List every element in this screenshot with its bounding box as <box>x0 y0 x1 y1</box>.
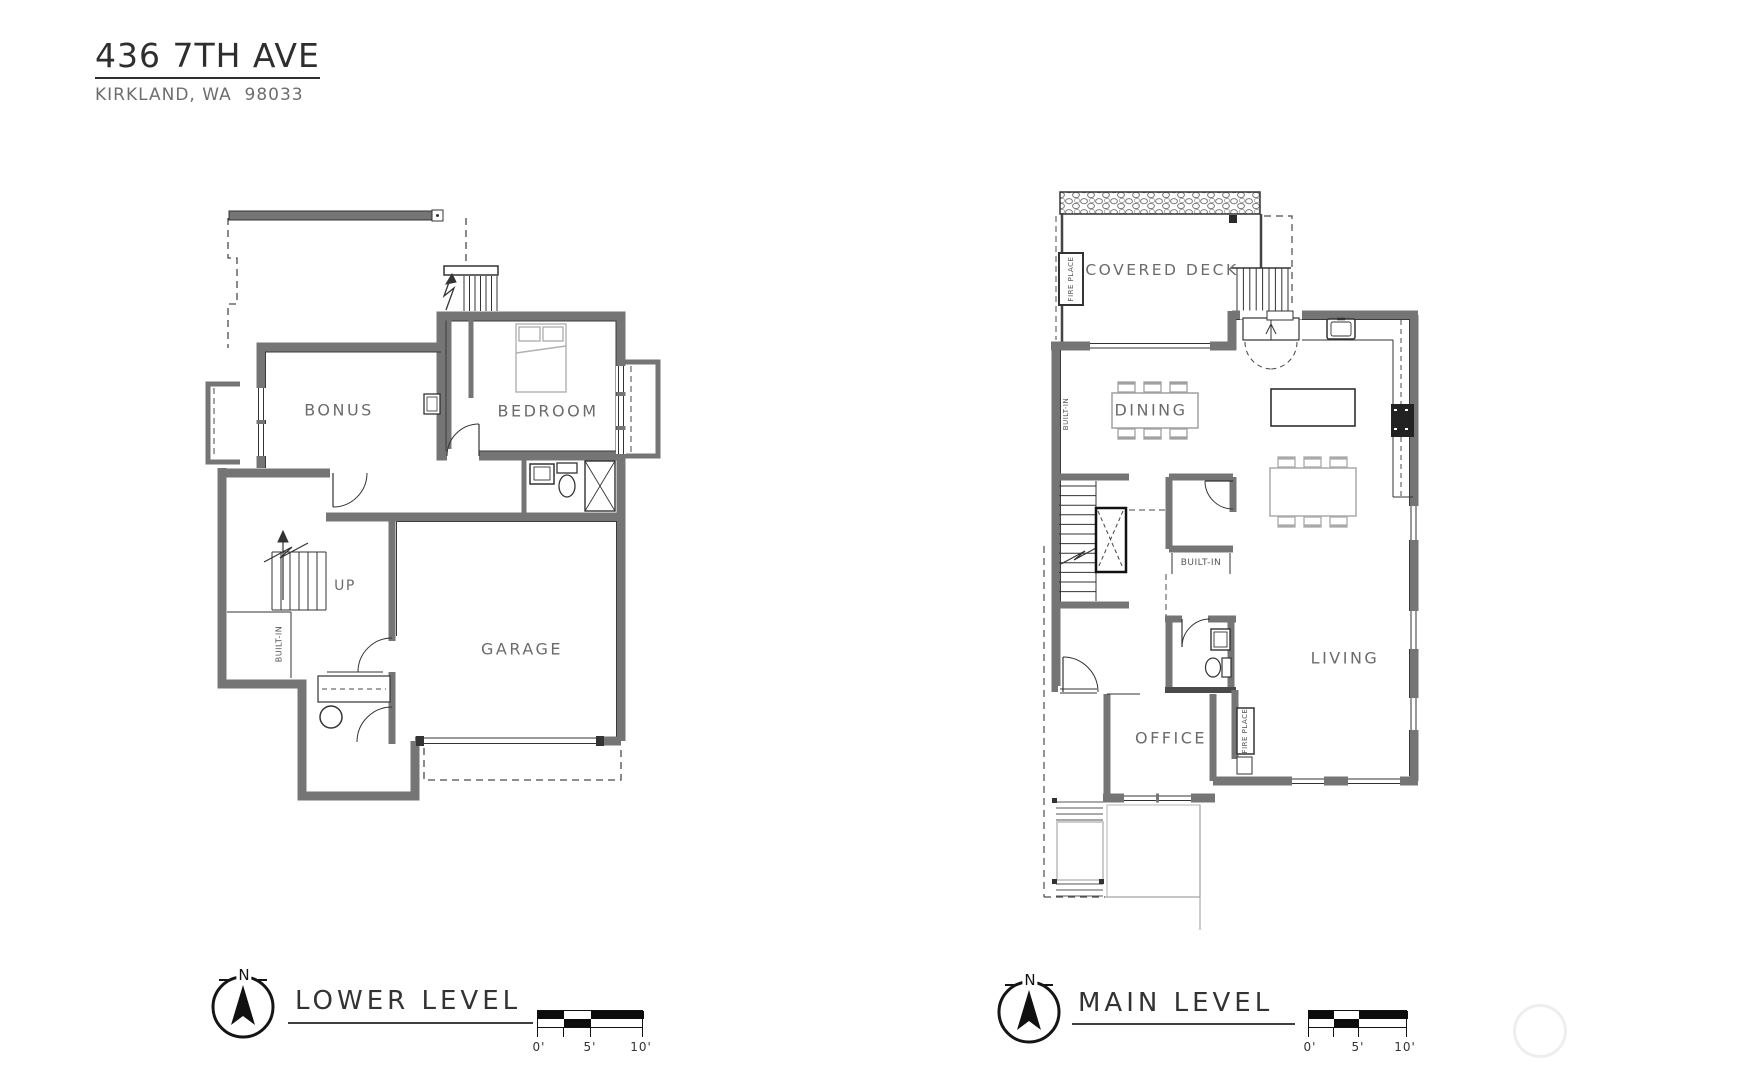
scale-tick-0: 0' <box>1304 1040 1317 1054</box>
retaining-wall <box>229 211 432 220</box>
scale-tick-10: 10' <box>630 1040 652 1054</box>
sheet-title: 436 7TH AVE <box>95 36 320 75</box>
north-arrow-icon <box>1017 990 1041 1030</box>
builtin-label-lower: BUILT-IN <box>275 626 284 662</box>
fireplace-label-living: FIRE PLACE <box>1241 709 1249 754</box>
kitchen-sink-icon <box>1327 319 1355 339</box>
compass-lower: N <box>209 970 279 1040</box>
patio-outline <box>1107 805 1200 897</box>
room-label-covered-deck: COVERED DECK <box>1085 261 1238 279</box>
powder-toilet-icon <box>1222 658 1231 677</box>
title-underline <box>95 77 320 79</box>
lower-level-plan <box>208 210 658 796</box>
scale-bar-blocks <box>1308 1010 1407 1028</box>
floor-plan-sheet: 436 7TH AVE KIRKLAND, WA 98033 BONUS BED… <box>0 0 1746 1066</box>
scale-tick-5: 5' <box>1352 1040 1365 1054</box>
island-icon <box>1271 389 1355 426</box>
sheet-subtitle: KIRKLAND, WA 98033 <box>95 85 304 105</box>
deck-stairs-icon <box>1231 268 1291 311</box>
room-label-living: LIVING <box>1311 649 1380 668</box>
window-bay-right <box>616 362 658 456</box>
fireplace-label-deck: FIRE PLACE <box>1067 257 1075 302</box>
lower-level-title: LOWER LEVEL <box>295 986 521 1016</box>
scale-bar-main: 0' 5' 10' <box>1308 1010 1407 1028</box>
builtin-label-main-wall: BUILT-IN <box>1062 398 1070 430</box>
kitchen-table-icon <box>1270 457 1356 527</box>
bath-sink-icon <box>530 464 554 484</box>
main-level-title: MAIN LEVEL <box>1078 988 1273 1018</box>
builtin-label-main: BUILT-IN <box>1181 558 1222 568</box>
range-icon <box>1391 404 1414 437</box>
shower-icon <box>585 461 615 511</box>
stone-band <box>1060 192 1260 214</box>
bed-icon <box>516 324 566 392</box>
scale-bar-lower: 0' 5' 10' <box>537 1010 643 1028</box>
main-level-plan <box>1044 192 1419 930</box>
lower-level-rule <box>288 1022 533 1024</box>
room-label-dining: DINING <box>1114 401 1187 420</box>
watermark-circle <box>1513 1004 1567 1058</box>
powder-room <box>1165 617 1236 690</box>
compass-main: N <box>995 975 1065 1045</box>
front-porch <box>1052 798 1104 896</box>
office-walls <box>1103 694 1215 803</box>
room-label-office: OFFICE <box>1135 729 1207 748</box>
north-arrow-icon <box>231 985 255 1025</box>
compass-north-label: N <box>236 966 251 984</box>
room-label-bonus: BONUS <box>304 401 374 420</box>
interior-stairs-icon <box>1054 477 1129 605</box>
room-label-bedroom: BEDROOM <box>497 402 598 421</box>
scale-tick-5: 5' <box>584 1040 597 1054</box>
plan-linework <box>0 0 1746 1066</box>
scale-tick-10: 10' <box>1394 1040 1416 1054</box>
scale-tick-0: 0' <box>533 1040 546 1054</box>
toilet-icon <box>557 463 577 497</box>
room-label-garage: GARAGE <box>481 640 563 659</box>
main-level-rule <box>1072 1023 1295 1025</box>
stairs-up-label: UP <box>334 578 356 594</box>
up-stairs-icon <box>264 531 326 610</box>
exterior-stairs-icon <box>444 266 498 311</box>
compass-north-label: N <box>1022 971 1037 989</box>
column-icon <box>320 706 342 728</box>
scale-bar-blocks <box>537 1010 643 1028</box>
